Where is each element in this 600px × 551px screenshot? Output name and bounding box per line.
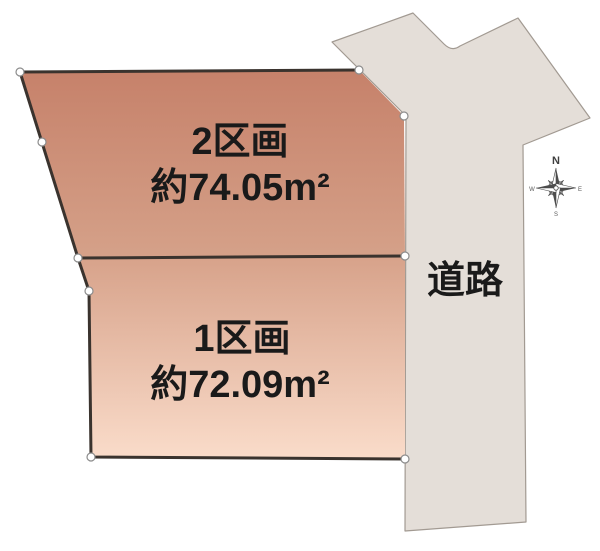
parcel-1-label: 1区画 — [193, 318, 290, 360]
vertex-dot — [355, 66, 363, 74]
vertex-dot — [85, 287, 93, 295]
parcel-2-area — [20, 70, 405, 258]
plot-diagram: 2区画 約74.05m² 1区画 約72.09m² 道路 — [0, 0, 600, 551]
compass-east-label: E — [578, 187, 582, 193]
vertex-dot — [87, 453, 95, 461]
vertex-dot — [38, 138, 46, 146]
vertex-dot — [400, 112, 408, 120]
parcel-2-label: 2区画 — [191, 121, 288, 163]
parcel-1-size: 約72.09m² — [150, 364, 330, 406]
compass-south-label: S — [554, 212, 558, 218]
compass-center-dot — [554, 186, 558, 190]
vertex-dot — [401, 252, 409, 260]
vertex-dot — [401, 455, 409, 463]
diagram-canvas: 2区画 約74.05m² 1区画 約72.09m² 道路 — [0, 0, 600, 551]
site-boundary-top — [20, 70, 359, 72]
road-label: 道路 — [427, 260, 504, 302]
compass-west-label: W — [529, 187, 535, 193]
compass-north-label: N — [552, 155, 560, 167]
vertex-dot — [74, 254, 82, 262]
parcel-divider-line — [78, 256, 405, 258]
parcel-2-size: 約74.05m² — [150, 167, 330, 209]
compass-icon: N W E S — [529, 155, 582, 218]
vertex-dot — [16, 68, 24, 76]
